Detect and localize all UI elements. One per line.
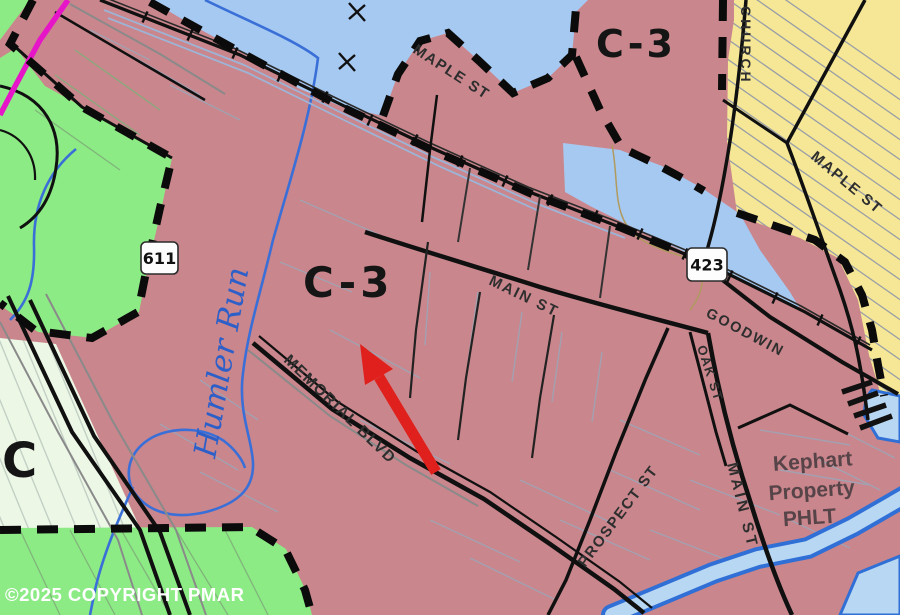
label-c-left: C bbox=[2, 433, 37, 489]
label-c3-center: C-3 bbox=[303, 258, 393, 307]
zoning-map: 611 423 MAPLE ST MAPLE ST CHURCH MAIN ST… bbox=[0, 0, 900, 615]
route-423-number: 423 bbox=[690, 256, 723, 275]
boundary-church bbox=[722, 0, 723, 90]
route-marker-423: 423 bbox=[687, 248, 727, 281]
label-church-st: CHURCH bbox=[738, 6, 754, 85]
route-marker-611: 611 bbox=[141, 242, 178, 274]
label-c3-top-right: C-3 bbox=[596, 22, 676, 66]
route-611-number: 611 bbox=[143, 249, 176, 268]
zoning-map-canvas: 611 423 MAPLE ST MAPLE ST CHURCH MAIN ST… bbox=[0, 0, 900, 615]
kephart-line3: PHLT bbox=[782, 505, 837, 532]
copyright-text: ©2025 COPYRIGHT PMAR bbox=[5, 584, 245, 605]
